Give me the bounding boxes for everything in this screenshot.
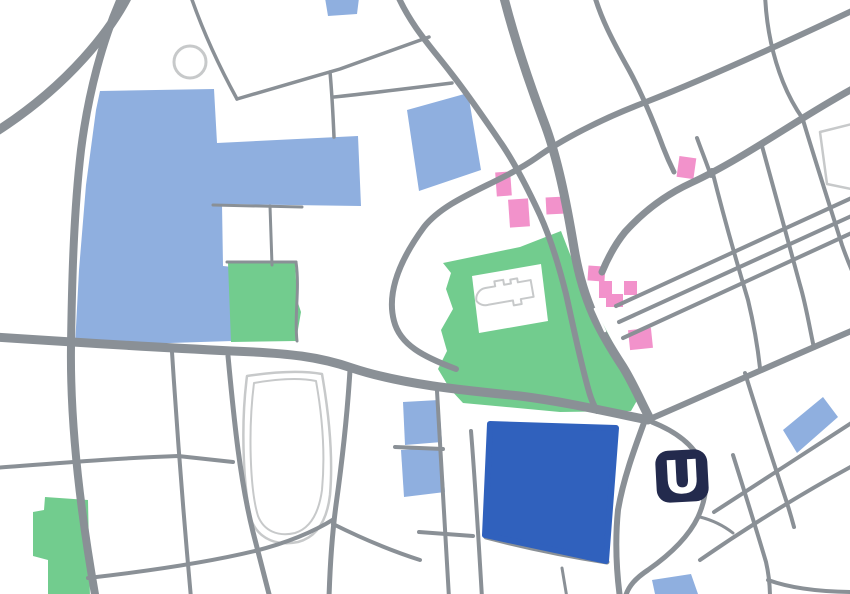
corner-plot-outline <box>820 123 850 190</box>
park-area-small <box>228 261 301 342</box>
water-area-bottom <box>652 574 698 594</box>
street-sc-3 <box>395 447 443 449</box>
road-junction-south <box>616 420 645 594</box>
church-plot <box>472 264 548 333</box>
street-sc-4 <box>419 532 473 536</box>
street-ne-5 <box>697 138 711 176</box>
street-stadium-southeast <box>333 524 420 560</box>
pond-circle <box>174 46 206 78</box>
water-area-east <box>783 397 838 453</box>
street-stadium-right <box>329 370 350 594</box>
street-sw-horizontal <box>0 456 233 468</box>
street-sc-5 <box>562 568 567 594</box>
street-top-3 <box>330 72 334 137</box>
street-se-5 <box>768 580 850 592</box>
u-station-label: U <box>662 449 702 505</box>
map-canvas: U <box>0 0 850 594</box>
highlight-block <box>485 424 616 561</box>
street-notch-4 <box>296 262 297 341</box>
street-notch-2 <box>270 206 272 265</box>
pink-building <box>677 156 697 179</box>
water-area-mid <box>407 93 481 191</box>
water-area-top <box>325 0 359 16</box>
road-northeast-avenue <box>602 87 850 272</box>
pink-building <box>624 281 637 295</box>
street-notch-1 <box>213 205 302 207</box>
street-top-4 <box>334 83 452 97</box>
street-ne-1 <box>765 0 803 119</box>
corridor-line-2 <box>619 214 850 322</box>
street-sc-2 <box>471 431 482 594</box>
pink-building <box>508 198 530 227</box>
water-area-large <box>75 89 361 346</box>
street-top-1 <box>190 0 237 99</box>
street-se-2 <box>700 464 850 560</box>
street-se-3 <box>745 373 794 527</box>
road-north-diagonal <box>594 0 674 172</box>
street-sw-vertical <box>172 352 191 594</box>
corridor-line-3 <box>623 231 850 338</box>
stadium-grounds <box>243 372 331 543</box>
map-illustration: U <box>0 0 850 594</box>
u-station-marker[interactable]: U <box>655 449 710 506</box>
street-ne-3 <box>762 146 814 348</box>
water-area-small-2 <box>401 448 445 497</box>
road-loop-connector <box>700 517 733 533</box>
